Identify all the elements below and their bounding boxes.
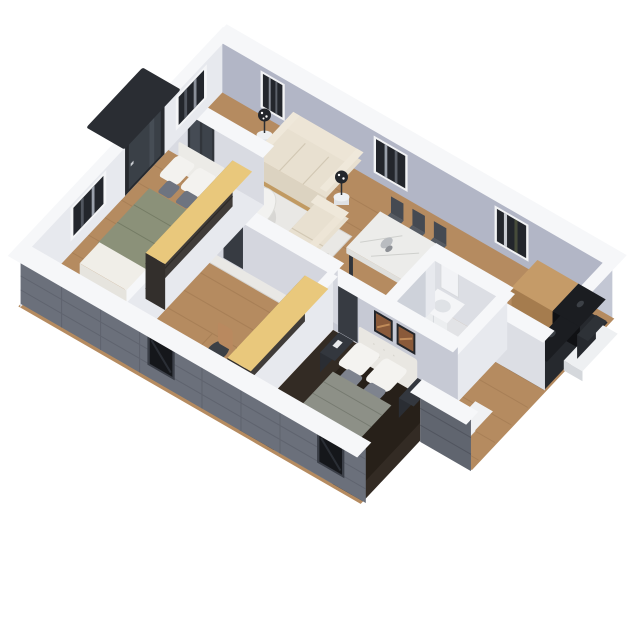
checkered-lamp (335, 171, 348, 184)
checkered-lamp (258, 109, 271, 122)
floor-plan-render (0, 0, 640, 640)
isometric-scene (0, 0, 640, 640)
